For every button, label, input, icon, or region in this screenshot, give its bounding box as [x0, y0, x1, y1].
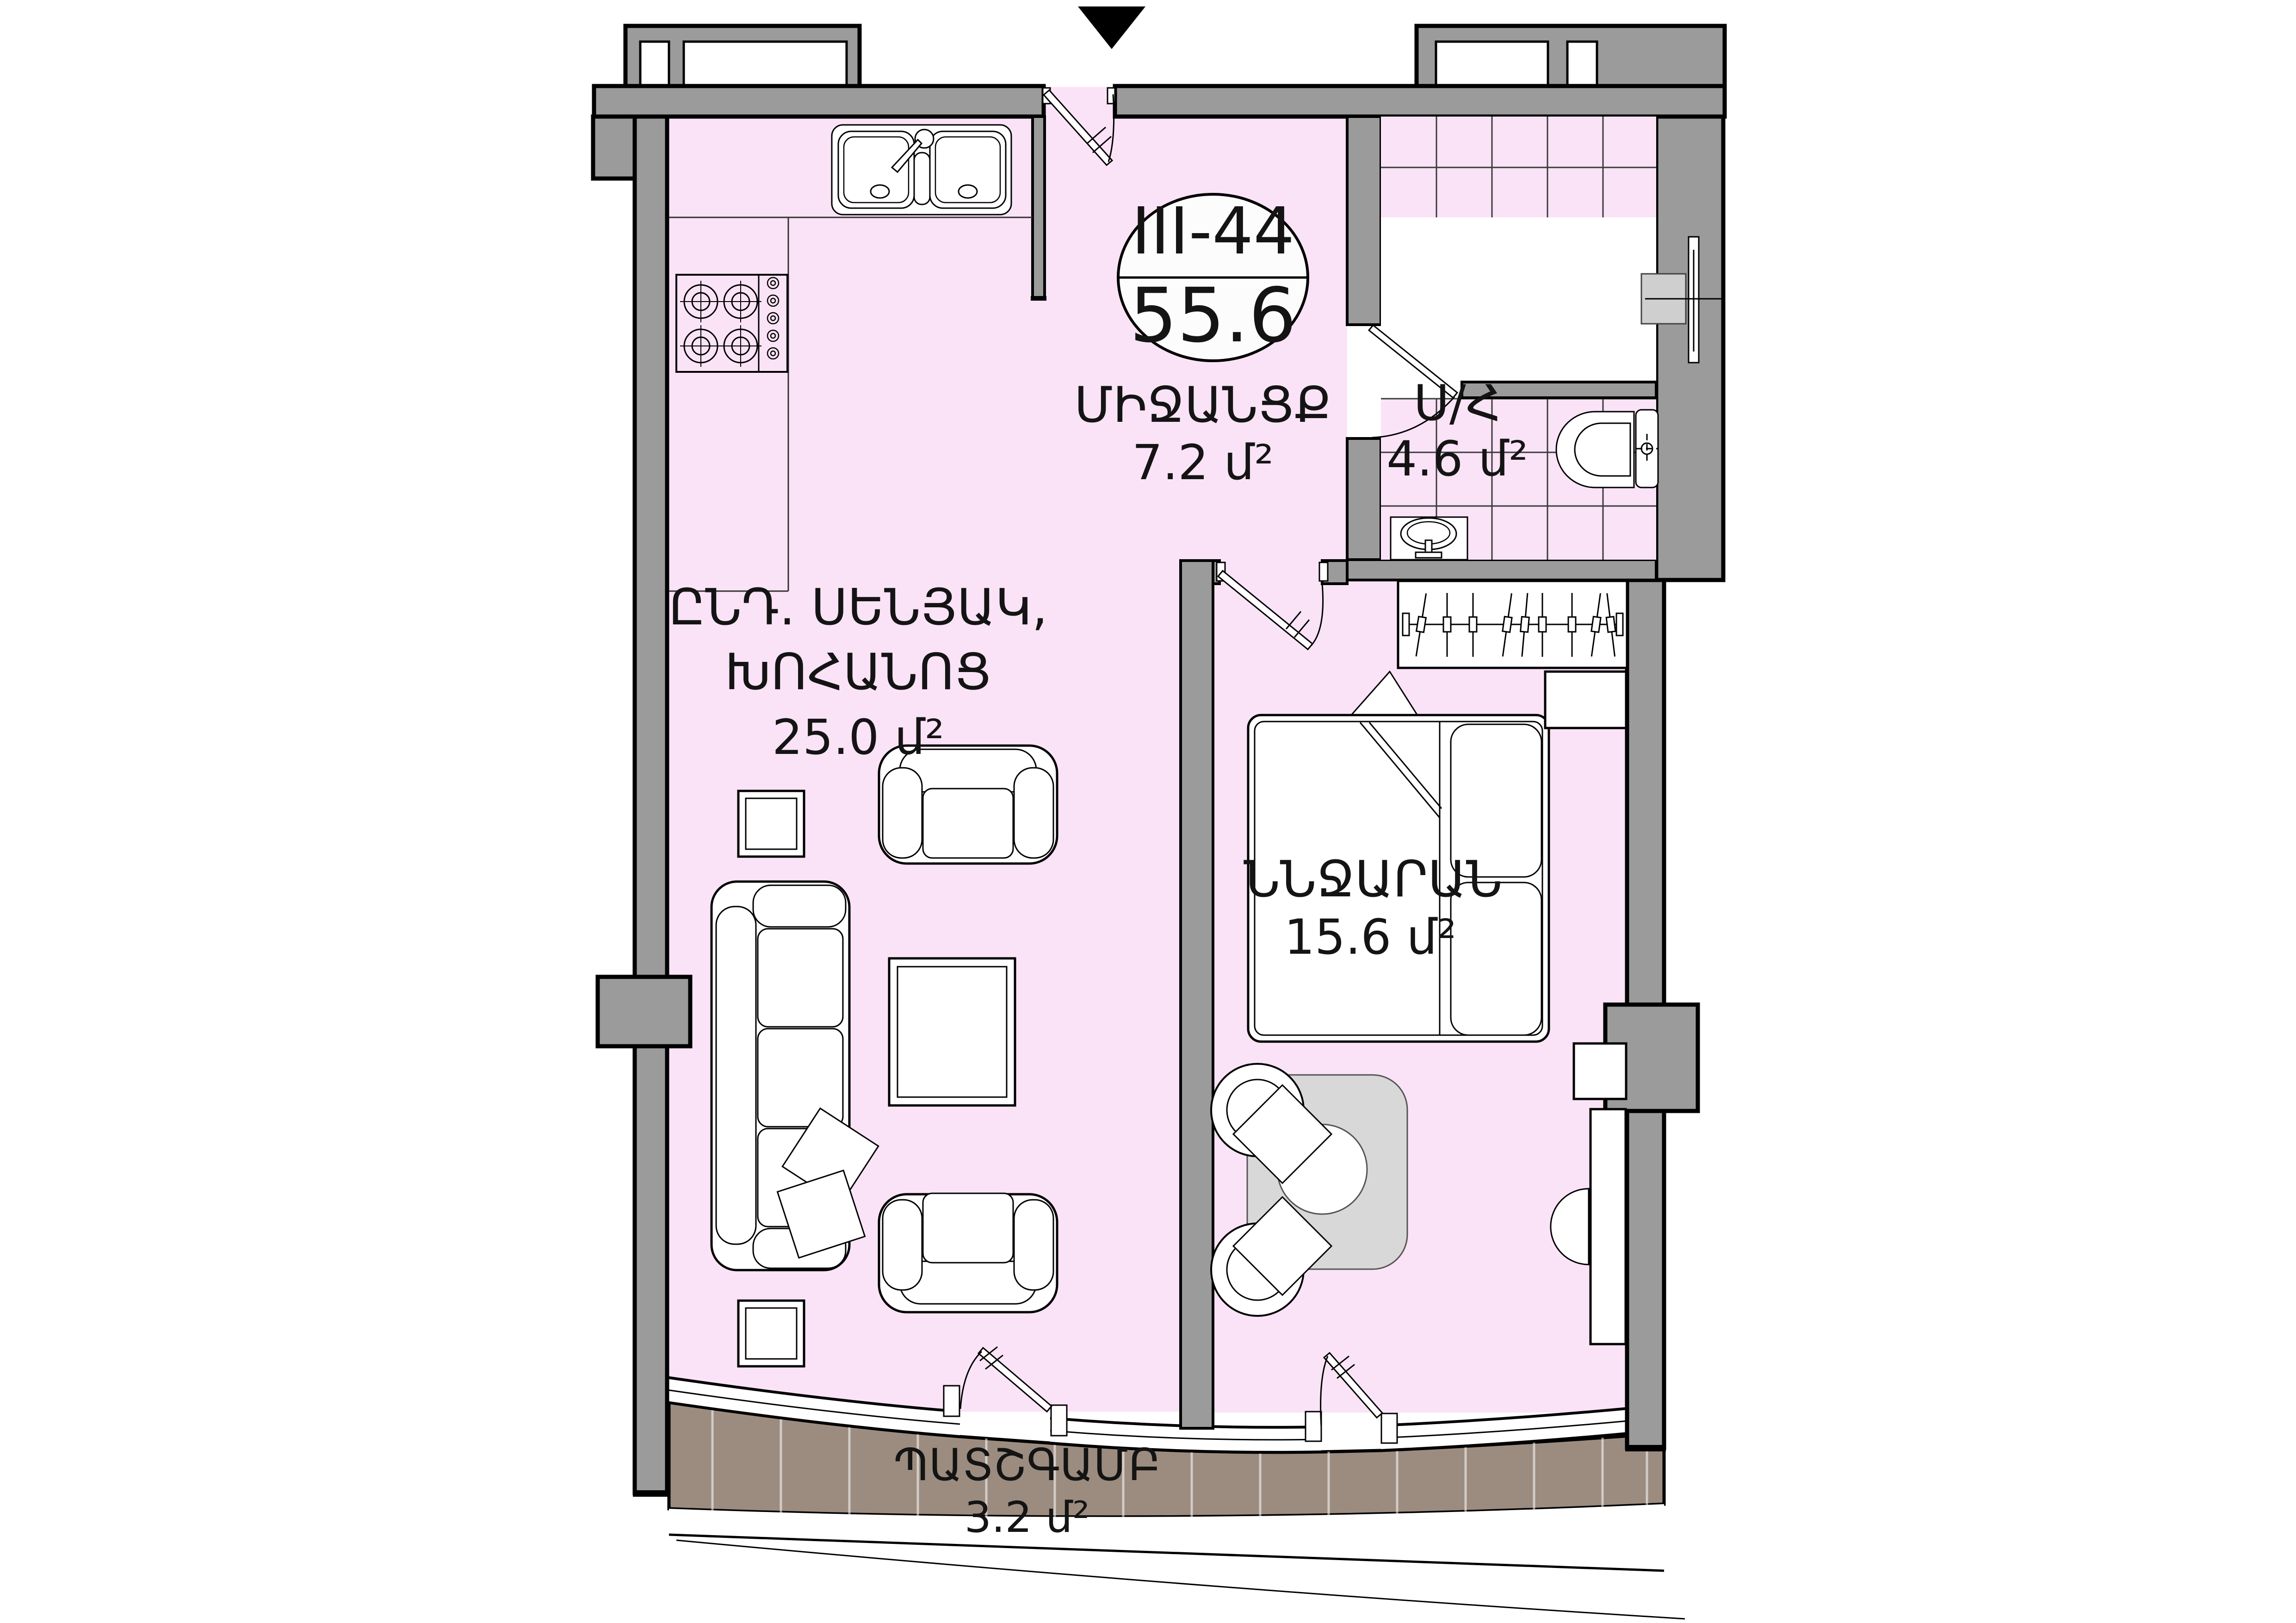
wardrobe-icon	[1398, 581, 1627, 668]
hallway-label: ՄԻՋԱՆՑՔ	[1074, 376, 1331, 433]
kitchen-divider-wall	[1033, 117, 1045, 298]
balcony-area: 3.2 մ²	[965, 1493, 1090, 1542]
bath-bottom-wall	[1347, 560, 1656, 580]
hallway-area: 7.2 մ²	[1132, 434, 1274, 491]
nightstand-icon	[1545, 672, 1626, 728]
left-wall	[635, 117, 667, 1493]
balcony-label: ՊԱՏՇԳԱՄԲ	[894, 1440, 1161, 1491]
washbasin-icon	[1391, 517, 1467, 560]
bedroom-area: 15.6 մ²	[1284, 909, 1456, 965]
living-room-area: 25.0 մ²	[772, 709, 944, 765]
living-room-label-line1: ԸՆԴ. ՍԵՆՅԱԿ,	[668, 579, 1047, 636]
unit-id: III-44	[1132, 194, 1295, 269]
bathroom-label: Ս/Հ	[1413, 375, 1501, 432]
hall-bath-wall	[1347, 438, 1381, 561]
side-table-icon	[738, 791, 804, 857]
hall-bath-wall	[1347, 117, 1381, 325]
armchair-icon	[879, 1193, 1057, 1312]
floor-plan: ԸՆԴ. ՍԵՆՅԱԿ, ԽՈՀԱՆՈՑ 25.0 մ² ՄԻՋԱՆՑՔ 7.2…	[0, 0, 2296, 1623]
bathroom-tiles	[1381, 117, 1656, 560]
pilaster	[598, 977, 690, 1046]
nightstand-icon	[1574, 1043, 1626, 1099]
top-wall-left	[594, 86, 1044, 117]
living-bedroom-wall	[1181, 561, 1213, 1428]
unit-badge: III-44 55.6	[1118, 194, 1308, 361]
coffee-table-icon	[889, 958, 1015, 1105]
living-room-label-line2: ԽՈՀԱՆՈՑ	[725, 643, 992, 701]
unit-total-area: 55.6	[1130, 272, 1297, 359]
dresser-icon	[1590, 1109, 1626, 1344]
top-wall-right	[1115, 86, 1725, 117]
toilet-icon	[1556, 410, 1658, 488]
side-table-icon	[738, 1301, 804, 1366]
kitchen-sink-icon	[832, 125, 1011, 215]
bathroom-area: 4.6 մ²	[1386, 431, 1528, 487]
bedroom-label: ՆՆՋԱՐԱՆ	[1244, 851, 1503, 908]
